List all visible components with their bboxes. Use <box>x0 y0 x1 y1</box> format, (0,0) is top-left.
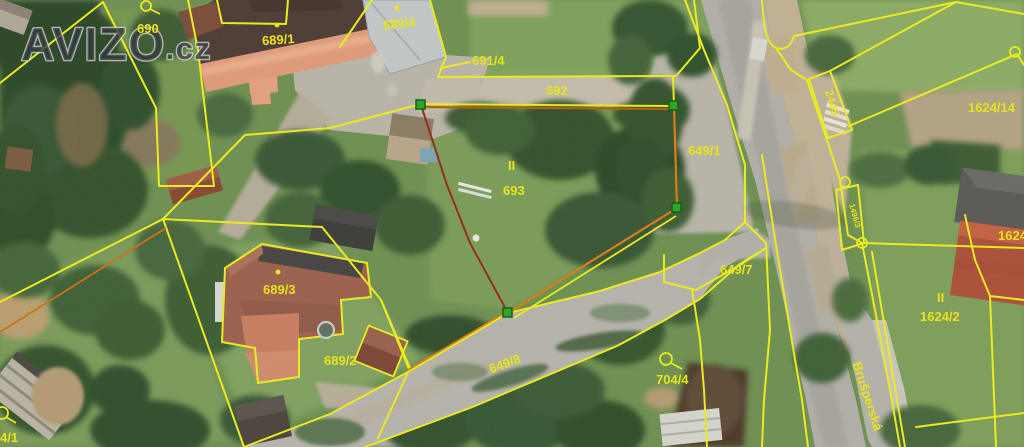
svg-text:691/4: 691/4 <box>472 53 505 68</box>
svg-text:II: II <box>508 158 515 173</box>
svg-text:II: II <box>937 290 944 305</box>
svg-text:1624: 1624 <box>998 228 1024 243</box>
svg-text:692: 692 <box>546 83 568 98</box>
svg-text:649/1: 649/1 <box>688 143 721 158</box>
svg-text:704/4: 704/4 <box>656 372 689 387</box>
svg-text:1624/2: 1624/2 <box>920 309 960 324</box>
svg-text:689/2: 689/2 <box>324 353 357 368</box>
svg-text:689/3: 689/3 <box>263 282 296 297</box>
svg-text:649/7: 649/7 <box>720 262 753 277</box>
svg-text:689/1: 689/1 <box>261 31 295 48</box>
svg-text:1624/14: 1624/14 <box>968 100 1016 115</box>
svg-text:693: 693 <box>503 183 525 198</box>
svg-text:690: 690 <box>137 21 159 36</box>
svg-text:4/1: 4/1 <box>0 430 18 445</box>
